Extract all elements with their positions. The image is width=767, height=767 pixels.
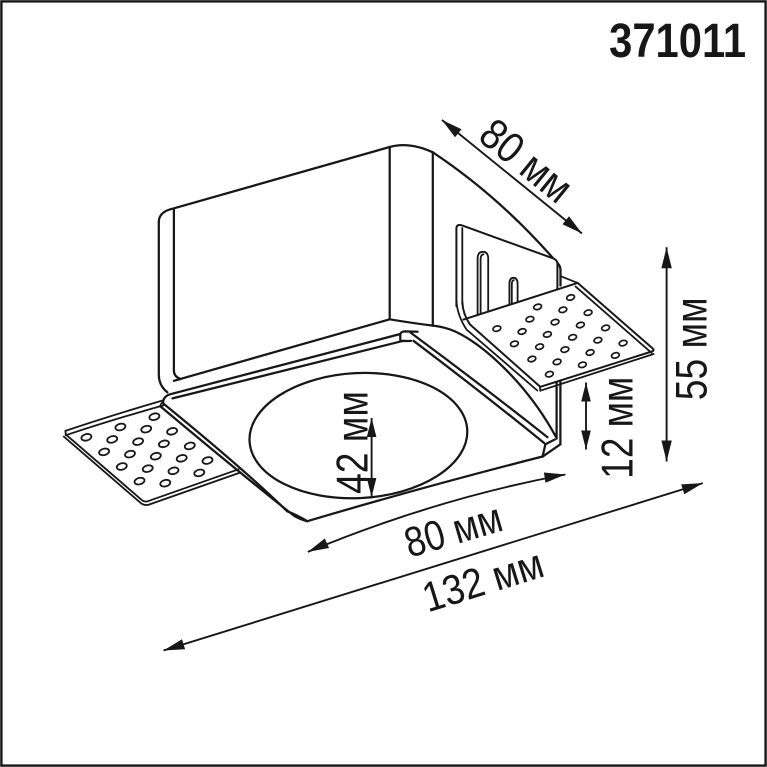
svg-text:371011: 371011: [609, 13, 746, 67]
svg-text:55 мм: 55 мм: [667, 297, 717, 400]
svg-text:12 мм: 12 мм: [593, 377, 643, 479]
svg-text:42 мм: 42 мм: [328, 391, 378, 494]
